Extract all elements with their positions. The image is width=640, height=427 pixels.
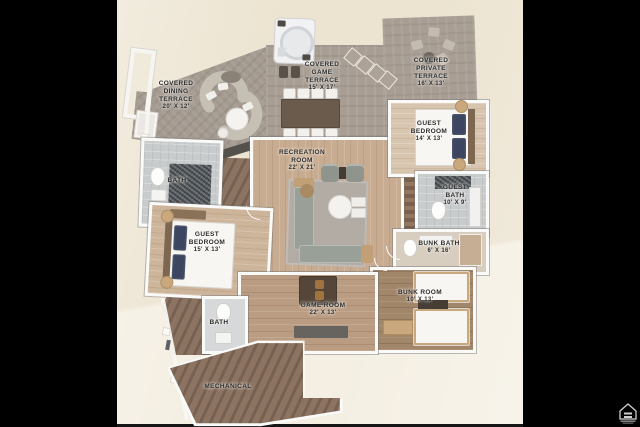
armchair [346,164,364,182]
floor-plan-image: COVERED DINING TERRACE 20' X 12' COVERED… [0,0,640,427]
room-label-guest-bath: GUEST BATH 10' X 9' [438,184,472,208]
fireplace [339,167,346,179]
side-table [351,208,366,218]
round-coffee-table [328,195,352,219]
sofa-end-table [361,245,373,263]
hot-tub-cover [302,54,310,60]
room-label-guest-bedroom-left: GUEST BEDROOM 15' X 13' [183,231,231,255]
outdoor-dining-table [281,99,340,128]
plant [300,184,314,198]
room-label-bunk-bath: BUNK BATH 6' X 16' [407,240,471,256]
stool [315,280,324,289]
side-table [351,197,366,207]
room-label-bunk-room: BUNK ROOM 10' X 13' [387,289,453,305]
room-label-bath-upper: BATH [162,177,192,185]
pillow [452,114,466,135]
hot-tub-seat [277,47,285,56]
room-label-covered-private-terrace: COVERED PRIVATE TERRACE 16' X 13' [408,57,454,89]
letterbox-right [523,0,640,427]
pillow [452,138,466,159]
stool [315,291,324,300]
room-label-covered-game-terrace: COVERED GAME TERRACE 15' X 17' [299,61,345,93]
planter-box [134,111,157,139]
bench [383,320,413,335]
sink-icon [150,189,166,202]
bunk-bed [413,308,470,346]
equal-housing-opportunity-icon [619,403,637,425]
sink-icon [215,332,232,344]
pouf [160,276,174,290]
hot-tub [274,18,315,63]
pouf [453,158,466,171]
sectional-sofa [299,245,363,263]
room-label-game-room: GAME ROOM 22' X 13' [290,302,356,318]
headboard [468,109,475,164]
room-label-guest-bedroom-upper: GUEST BEDROOM 14' X 13' [405,120,453,144]
room-label-mechanical: MECHANICAL [193,383,263,391]
room-label-bath-lower: BATH [204,319,234,327]
room-label-recreation-room: RECREATION ROOM 22' X 21' [276,149,328,173]
bunk-room-room [370,267,476,353]
room-label-covered-dining-terrace: COVERED DINING TERRACE 20' X 12' [153,80,199,112]
pillow [172,254,186,280]
pouf [455,100,468,113]
console-bench [294,326,348,338]
letterbox-left [0,0,117,427]
lounge-chair [279,66,288,78]
console [170,209,206,220]
hot-tub-cover [277,20,285,26]
dining-chair [283,88,296,99]
